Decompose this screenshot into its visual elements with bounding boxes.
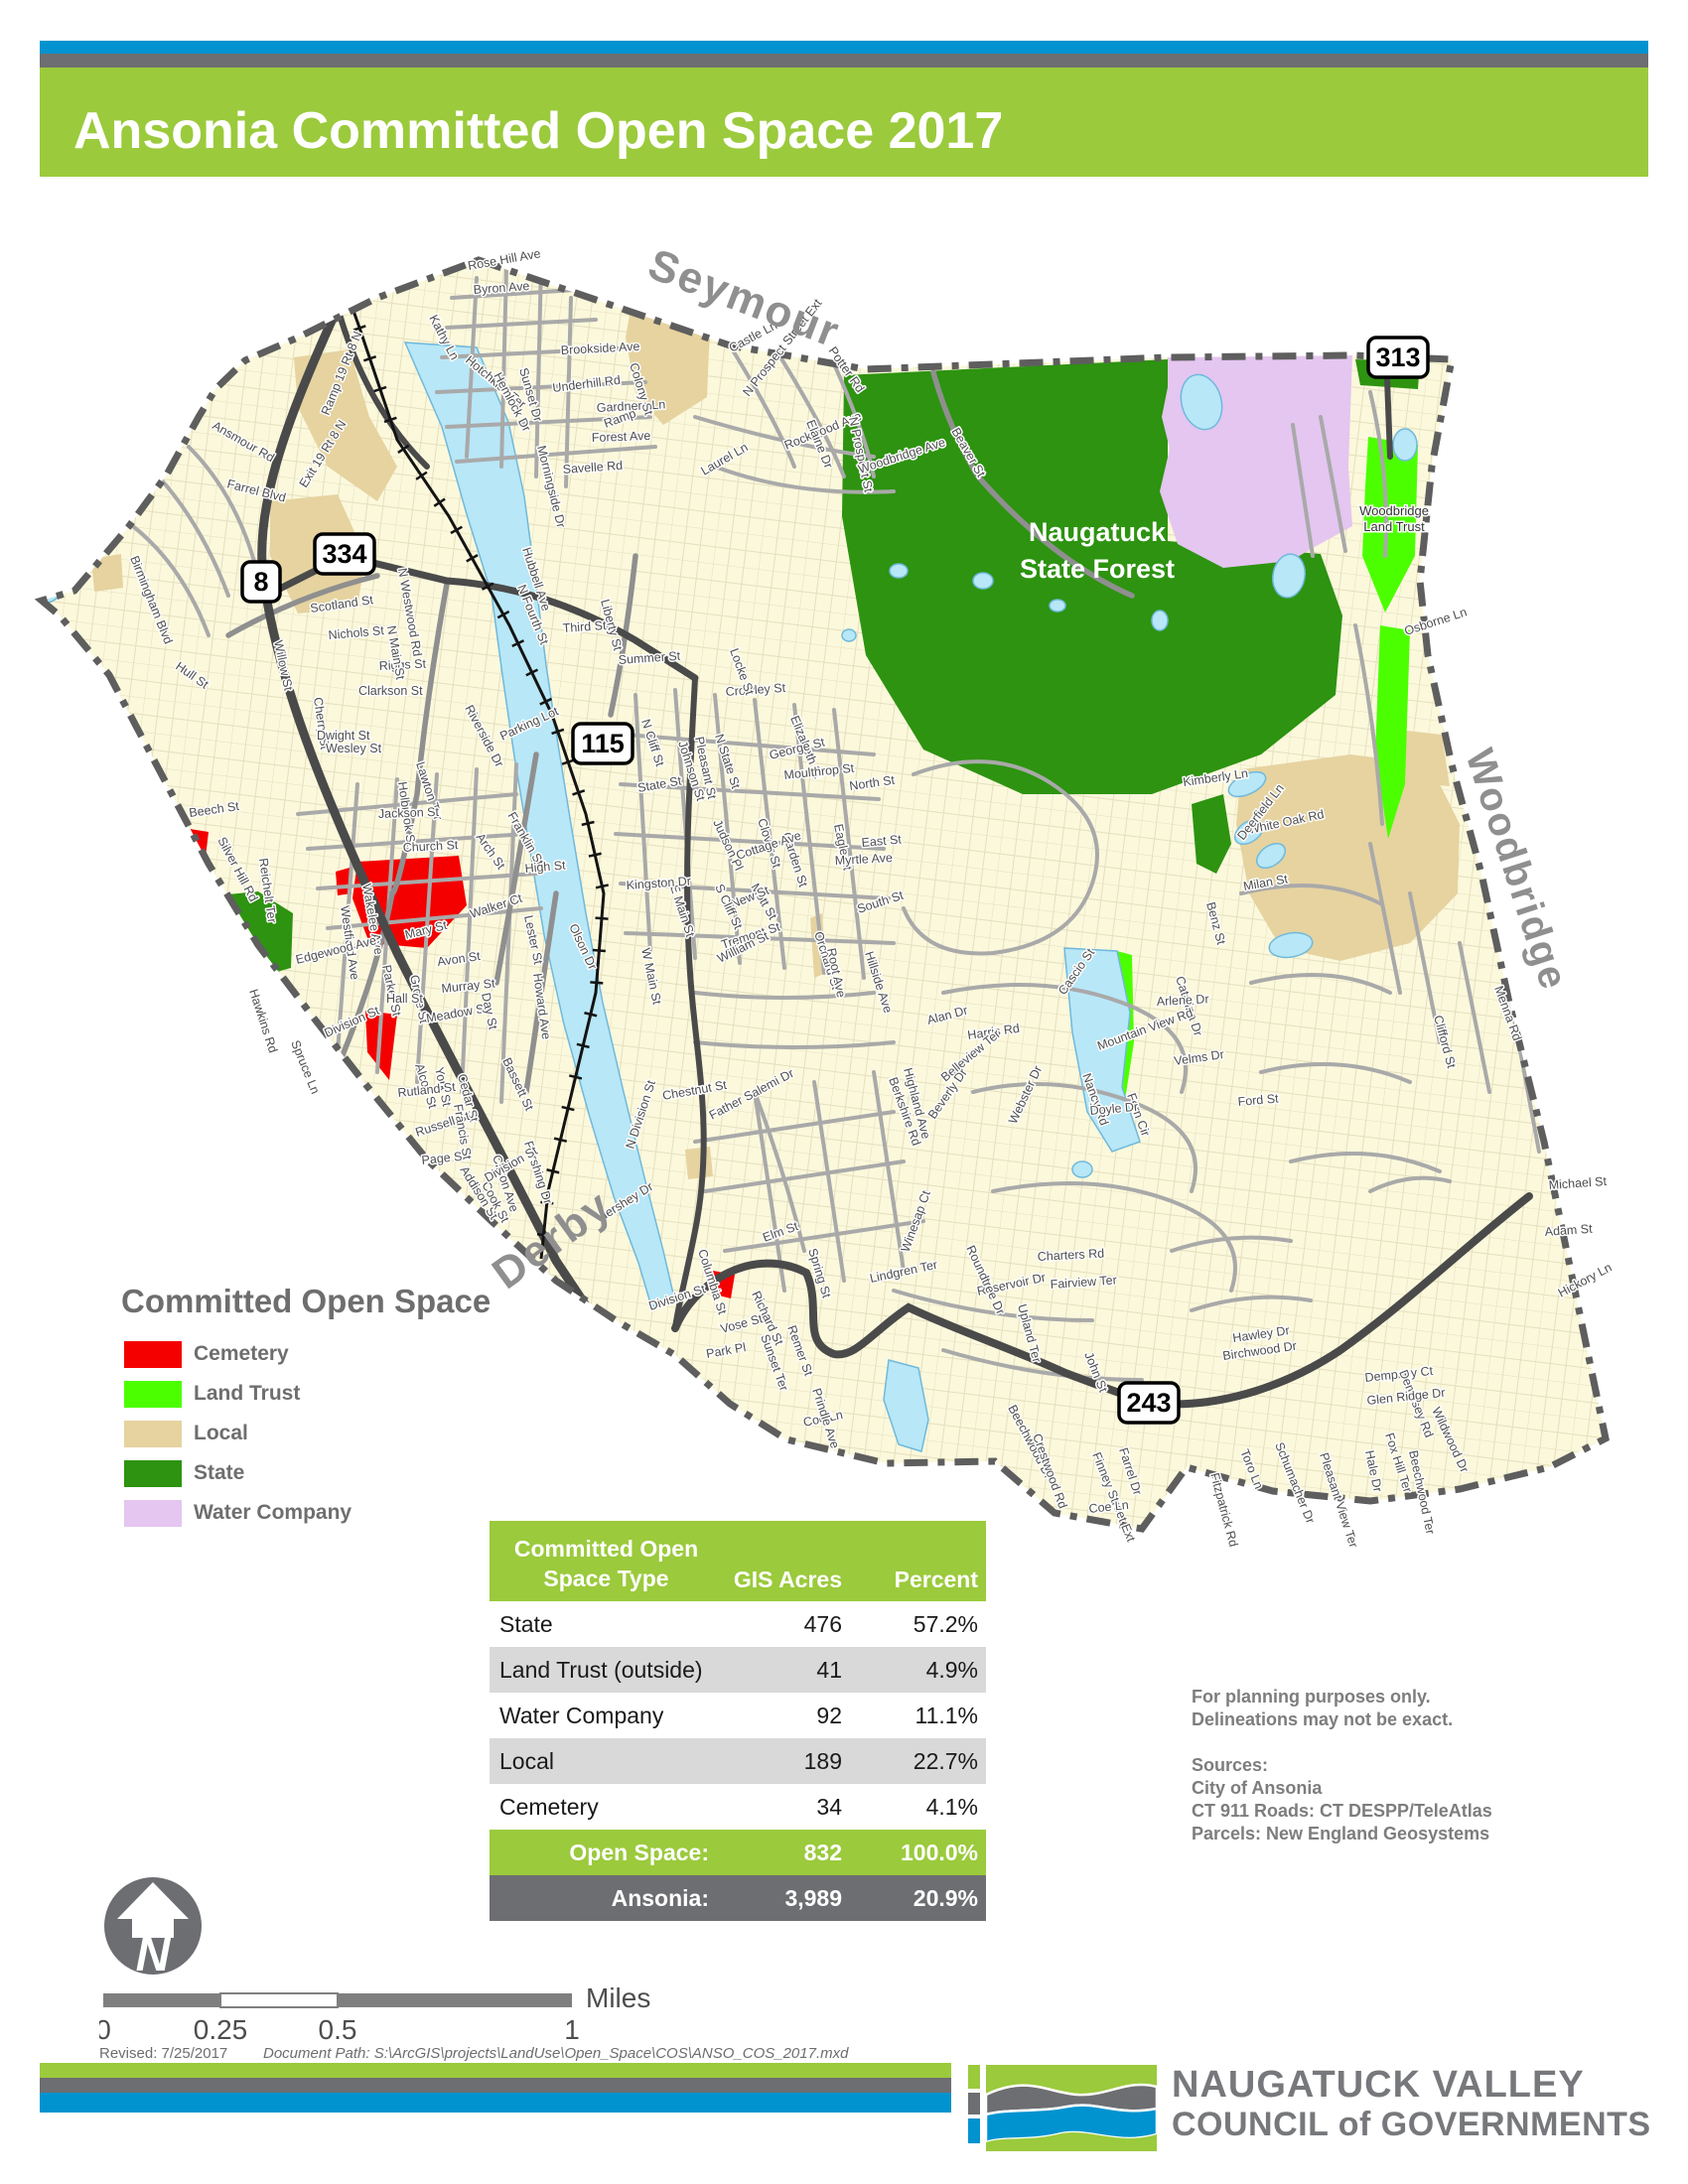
legend-label: Land Trust xyxy=(194,1382,300,1406)
north-label: N xyxy=(136,1929,172,1981)
row-percent: 22.7% xyxy=(852,1748,986,1775)
table-row: Cemetery 34 4.1% xyxy=(490,1784,986,1830)
row-type: Cemetery xyxy=(490,1794,723,1821)
table-total-open-space: Open Space: 832 100.0% xyxy=(490,1830,986,1875)
row-acres: 476 xyxy=(723,1611,852,1638)
footer-gray-stripe xyxy=(40,2078,951,2093)
street-label: Clarkson St xyxy=(358,684,423,698)
legend-item-state: State xyxy=(99,1453,496,1493)
row-acres: 34 xyxy=(723,1794,852,1821)
logo-line2: COUNCIL of GOVERNMENTS xyxy=(1172,2105,1651,2144)
row-type: Land Trust (outside) xyxy=(490,1657,723,1684)
row-percent: 57.2% xyxy=(852,1611,986,1638)
table-header-percent: Percent xyxy=(852,1567,986,1593)
street-label: Michael St xyxy=(1548,1174,1608,1192)
legend-item-land-trust: Land Trust xyxy=(99,1374,496,1414)
scale-tick: 1 xyxy=(564,2014,580,2045)
land-trust-swatch xyxy=(124,1381,182,1408)
document-path: Document Path: S:\ArcGIS\projects\LandUs… xyxy=(263,2045,848,2062)
legend: Committed Open Space Cemetery Land Trust… xyxy=(99,1283,496,1533)
street-label: Hall St xyxy=(386,992,423,1006)
route-shield-313: 313 xyxy=(1368,338,1428,377)
note-line: For planning purposes only. xyxy=(1192,1686,1609,1708)
street-label: Hawkins Rd xyxy=(246,988,280,1055)
legend-item-local: Local xyxy=(99,1414,496,1453)
footer-blue-stripe xyxy=(40,2093,951,2113)
legend-label: Cemetery xyxy=(194,1342,289,1366)
table-header-acres: GIS Acres xyxy=(723,1567,852,1593)
street-label: Jackson St xyxy=(378,805,440,821)
local-swatch xyxy=(124,1421,182,1447)
land-trust-label-line1: Woodbridge xyxy=(1359,503,1429,518)
scale-tick: 0.5 xyxy=(319,2014,357,2045)
svg-text:334: 334 xyxy=(322,539,366,569)
row-acres: 189 xyxy=(723,1748,852,1775)
route-shield-115: 115 xyxy=(573,724,633,763)
north-arrow: N xyxy=(99,1871,209,1982)
logo-line1: NAUGATUCK VALLEY xyxy=(1172,2065,1651,2105)
source-line: Parcels: New England Geosystems xyxy=(1192,1823,1609,1845)
scale-tick: 0.25 xyxy=(194,2014,248,2045)
forest-label-line1: Naugatuck xyxy=(1029,517,1167,547)
street-label: Adam St xyxy=(1544,1222,1593,1239)
water-company-swatch xyxy=(124,1500,182,1527)
table-row: State 476 57.2% xyxy=(490,1601,986,1647)
route-shield-334: 334 xyxy=(315,534,374,574)
street-label: Dwight St xyxy=(317,729,370,743)
source-line: CT 911 Roads: CT DESPP/TeleAtlas xyxy=(1192,1800,1609,1823)
land-trust-label-line2: Land Trust xyxy=(1363,519,1425,534)
footer-green-stripe xyxy=(40,2063,951,2078)
legend-title: Committed Open Space xyxy=(121,1283,496,1320)
scale-unit: Miles xyxy=(586,1983,650,2013)
legend-label: Water Company xyxy=(194,1501,352,1525)
legend-item-water-company: Water Company xyxy=(99,1493,496,1533)
table-row: Water Company 92 11.1% xyxy=(490,1693,986,1738)
street-label: Church St xyxy=(402,838,459,855)
svg-text:115: 115 xyxy=(581,729,625,758)
street-label: Wesley St xyxy=(326,742,382,755)
forest-label-line2: State Forest xyxy=(1020,554,1175,584)
scale-bar: 0 0.25 0.5 1 Miles xyxy=(99,1983,695,2053)
source-line: City of Ansonia xyxy=(1192,1777,1609,1800)
route-shield-8: 8 xyxy=(242,562,280,602)
scale-tick: 0 xyxy=(99,2014,111,2045)
map-sheet: Ansonia Committed Open Space 2017 xyxy=(0,0,1688,2184)
state-swatch xyxy=(124,1460,182,1487)
legend-item-cemetery: Cemetery xyxy=(99,1334,496,1374)
open-space-table: Committed OpenSpace Type GIS Acres Perce… xyxy=(490,1521,986,1921)
table-total-ansonia: Ansonia: 3,989 20.9% xyxy=(490,1875,986,1921)
row-type: Local xyxy=(490,1748,723,1775)
table-row: Land Trust (outside) 41 4.9% xyxy=(490,1647,986,1693)
svg-text:243: 243 xyxy=(1126,1388,1171,1418)
table-row: Local 189 22.7% xyxy=(490,1738,986,1784)
street-label: Arlene Dr xyxy=(1156,992,1208,1009)
row-type: State xyxy=(490,1611,723,1638)
note-line: Delineations may not be exact. xyxy=(1192,1708,1609,1731)
legend-label: Local xyxy=(194,1422,248,1445)
revised-date: Revised: 7/25/2017 xyxy=(99,2045,227,2062)
street-label: Forest Ave xyxy=(592,429,651,445)
table-header-row: Committed OpenSpace Type GIS Acres Perce… xyxy=(490,1521,986,1601)
row-percent: 4.9% xyxy=(852,1657,986,1684)
row-acres: 92 xyxy=(723,1703,852,1729)
row-acres: 41 xyxy=(723,1657,852,1684)
svg-text:8: 8 xyxy=(253,567,268,597)
legend-label: State xyxy=(194,1461,244,1485)
route-shield-243: 243 xyxy=(1119,1383,1179,1423)
map-notes: For planning purposes only. Delineations… xyxy=(1192,1686,1609,1845)
svg-text:313: 313 xyxy=(1375,342,1420,372)
nvcog-logo-icon xyxy=(968,2057,1157,2151)
row-percent: 11.1% xyxy=(852,1703,986,1729)
nvcog-logo-text: NAUGATUCK VALLEY COUNCIL of GOVERNMENTS xyxy=(1172,2065,1651,2144)
sources-title: Sources: xyxy=(1192,1754,1609,1777)
street-label: Fitzpatrick Rd xyxy=(1207,1471,1240,1548)
cemetery-swatch xyxy=(124,1341,182,1368)
table-header-type: Committed OpenSpace Type xyxy=(490,1534,723,1593)
street-label: Spruce Ln xyxy=(288,1038,322,1096)
row-type: Water Company xyxy=(490,1703,723,1729)
row-percent: 4.1% xyxy=(852,1794,986,1821)
